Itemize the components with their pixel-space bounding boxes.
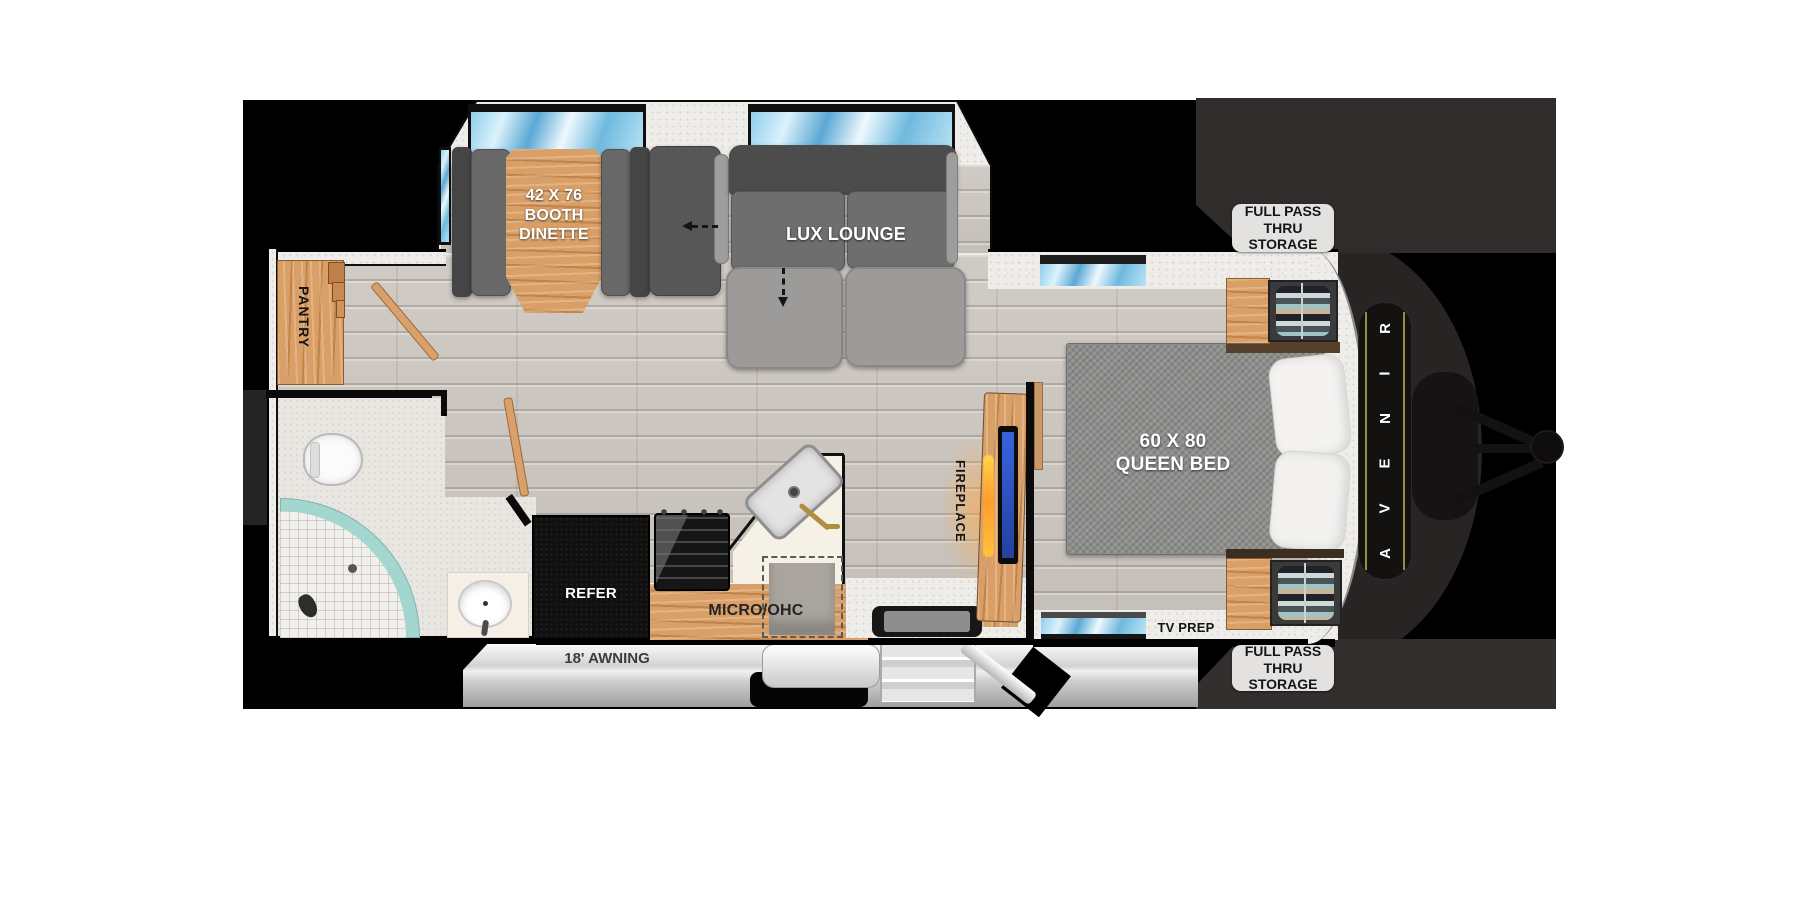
brand-letter-5: V: [1377, 503, 1392, 513]
microwave-ohc-body: [769, 563, 835, 635]
refrigerator-label-text: REFER: [565, 585, 617, 602]
pantry-shelf-step-2: [332, 282, 345, 302]
refrigerator-label: REFER: [536, 585, 646, 603]
awning-label-text: 18' AWNING: [564, 650, 650, 667]
kitchen-faucet-spout: [826, 524, 840, 529]
front-storage-bottom-label: FULL PASS THRU STORAGE: [1232, 645, 1334, 691]
front-storage-bottom-label-line2: STORAGE: [1232, 676, 1334, 693]
slide-motion-arrow-left: [682, 221, 718, 233]
pantry-label: PANTRY: [296, 286, 312, 376]
dinette-label: 42 X 76 BOOTH DINETTE: [504, 186, 604, 245]
entry-door-panel: [880, 645, 976, 702]
pantry-label-text: PANTRY: [296, 286, 312, 348]
lounge-sofa-armrest-right: [946, 152, 958, 264]
entry-mat-center: [884, 611, 970, 632]
pantry-shelf-step-3: [336, 300, 345, 318]
wardrobe-top-cabinet: [1226, 278, 1270, 344]
cooktop-knobs: [658, 509, 724, 515]
wardrobe-top-clothes: [1276, 286, 1330, 336]
brand-strip-pinstripe-left: [1365, 312, 1367, 570]
fireplace-flames: [983, 455, 994, 557]
cooktop: [654, 513, 730, 591]
tv-screen: [1002, 432, 1014, 558]
microwave-ohc-label: MICRO/OHC: [693, 602, 819, 620]
arrow-down-head: [778, 297, 788, 307]
entry-step-platform: [762, 644, 880, 688]
dinette-bench-left-back: [452, 147, 472, 297]
brand-letter-4: E: [1377, 458, 1392, 468]
bedroom-bottom-window: [1041, 618, 1146, 634]
wardrobe-bottom-top-edge: [1226, 549, 1344, 558]
dinette-label-size: 42 X 76: [504, 186, 604, 206]
bed-pillow-bottom: [1268, 449, 1352, 553]
front-storage-top-label: FULL PASS THRU STORAGE: [1232, 204, 1334, 252]
tv-prep-label-text: TV PREP: [1157, 620, 1214, 635]
bath-sink-drain: [483, 601, 488, 606]
lounge-label: LUX LOUNGE: [770, 224, 922, 246]
slide-motion-arrow-down: [778, 268, 790, 308]
fireplace-label: FIREPLACE: [953, 460, 968, 560]
queen-bed-label-name: QUEEN BED: [1098, 453, 1248, 476]
brand-letter-3: N: [1378, 413, 1393, 424]
floorplan-canvas: 18' AWNING PANTRY: [0, 0, 1800, 900]
lounge-ottoman-right: [845, 267, 966, 367]
arrow-left-line: [692, 225, 718, 228]
arrow-left-head: [682, 221, 692, 231]
bed-pillow-top: [1267, 352, 1353, 459]
hitch-tongue-bar: [1468, 444, 1532, 453]
wardrobe-bottom-clothes: [1278, 566, 1334, 620]
dinette-bench-right-seat: [601, 149, 631, 296]
tv-prep-label: TV PREP: [1156, 620, 1216, 635]
rear-bumper: [243, 390, 267, 525]
lounge-chaise-armrest: [714, 154, 729, 264]
front-storage-top-label-line2: STORAGE: [1232, 236, 1334, 253]
awning-label: 18' AWNING: [552, 650, 662, 668]
wardrobe-bottom-rod: [1304, 563, 1306, 623]
microwave-ohc-label-text: MICRO/OHC: [708, 602, 803, 619]
arrow-down-line: [782, 268, 785, 295]
toilet-seat-line: [310, 442, 320, 478]
bedroom-top-window: [1040, 264, 1146, 286]
dinette-label-booth: BOOTH: [504, 206, 604, 226]
slideout-side-window: [441, 150, 449, 242]
shower-drain: [348, 564, 357, 573]
queen-bed-label-size: 60 X 80: [1098, 430, 1248, 453]
lounge-label-text: LUX LOUNGE: [786, 224, 906, 244]
lounge-sofa-back: [729, 145, 957, 195]
dinette-label-dinette: DINETTE: [504, 225, 604, 245]
dinette-bench-right-back: [630, 147, 650, 297]
wardrobe-top-rod: [1301, 283, 1303, 339]
bedroom-partition-wall: [1026, 382, 1034, 640]
kitchen-sink-drain: [788, 486, 800, 498]
wall-bathroom-stub-v: [441, 390, 447, 416]
wardrobe-bottom-cabinet: [1226, 558, 1272, 630]
brand-letter-2: I: [1377, 371, 1392, 375]
wall-bathroom-top: [266, 390, 432, 398]
refrigerator: [532, 515, 650, 640]
bedroom-wall-shelf: [1034, 382, 1043, 470]
pantry-shelf-step-1: [328, 262, 345, 284]
bedroom-top-window-frame: [1040, 255, 1146, 264]
hitch-jack-wheel: [1530, 430, 1564, 464]
queen-bed-label: 60 X 80 QUEEN BED: [1098, 430, 1248, 476]
front-storage-top-label-line1: FULL PASS THRU: [1232, 203, 1334, 236]
fireplace-label-text: FIREPLACE: [953, 460, 968, 543]
brand-strip-pinstripe-right: [1403, 312, 1405, 570]
brand-letter-6: A: [1378, 548, 1393, 559]
brand-letter-1: R: [1378, 323, 1393, 334]
front-storage-bottom-label-line1: FULL PASS THRU: [1232, 643, 1334, 676]
